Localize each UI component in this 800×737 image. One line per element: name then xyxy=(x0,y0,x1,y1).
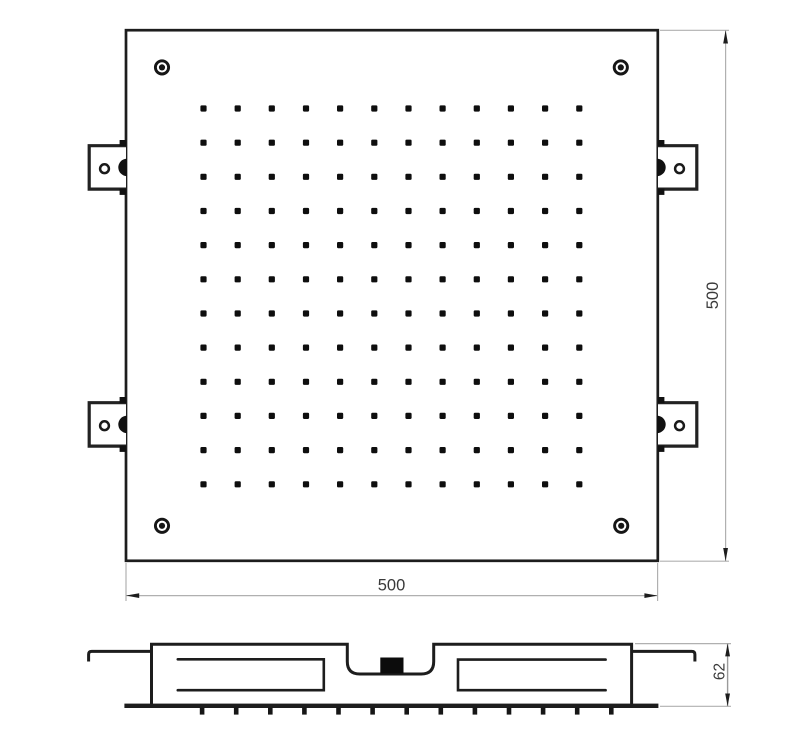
svg-text:500: 500 xyxy=(704,282,722,310)
svg-text:62: 62 xyxy=(712,663,729,680)
svg-text:500: 500 xyxy=(378,577,406,595)
